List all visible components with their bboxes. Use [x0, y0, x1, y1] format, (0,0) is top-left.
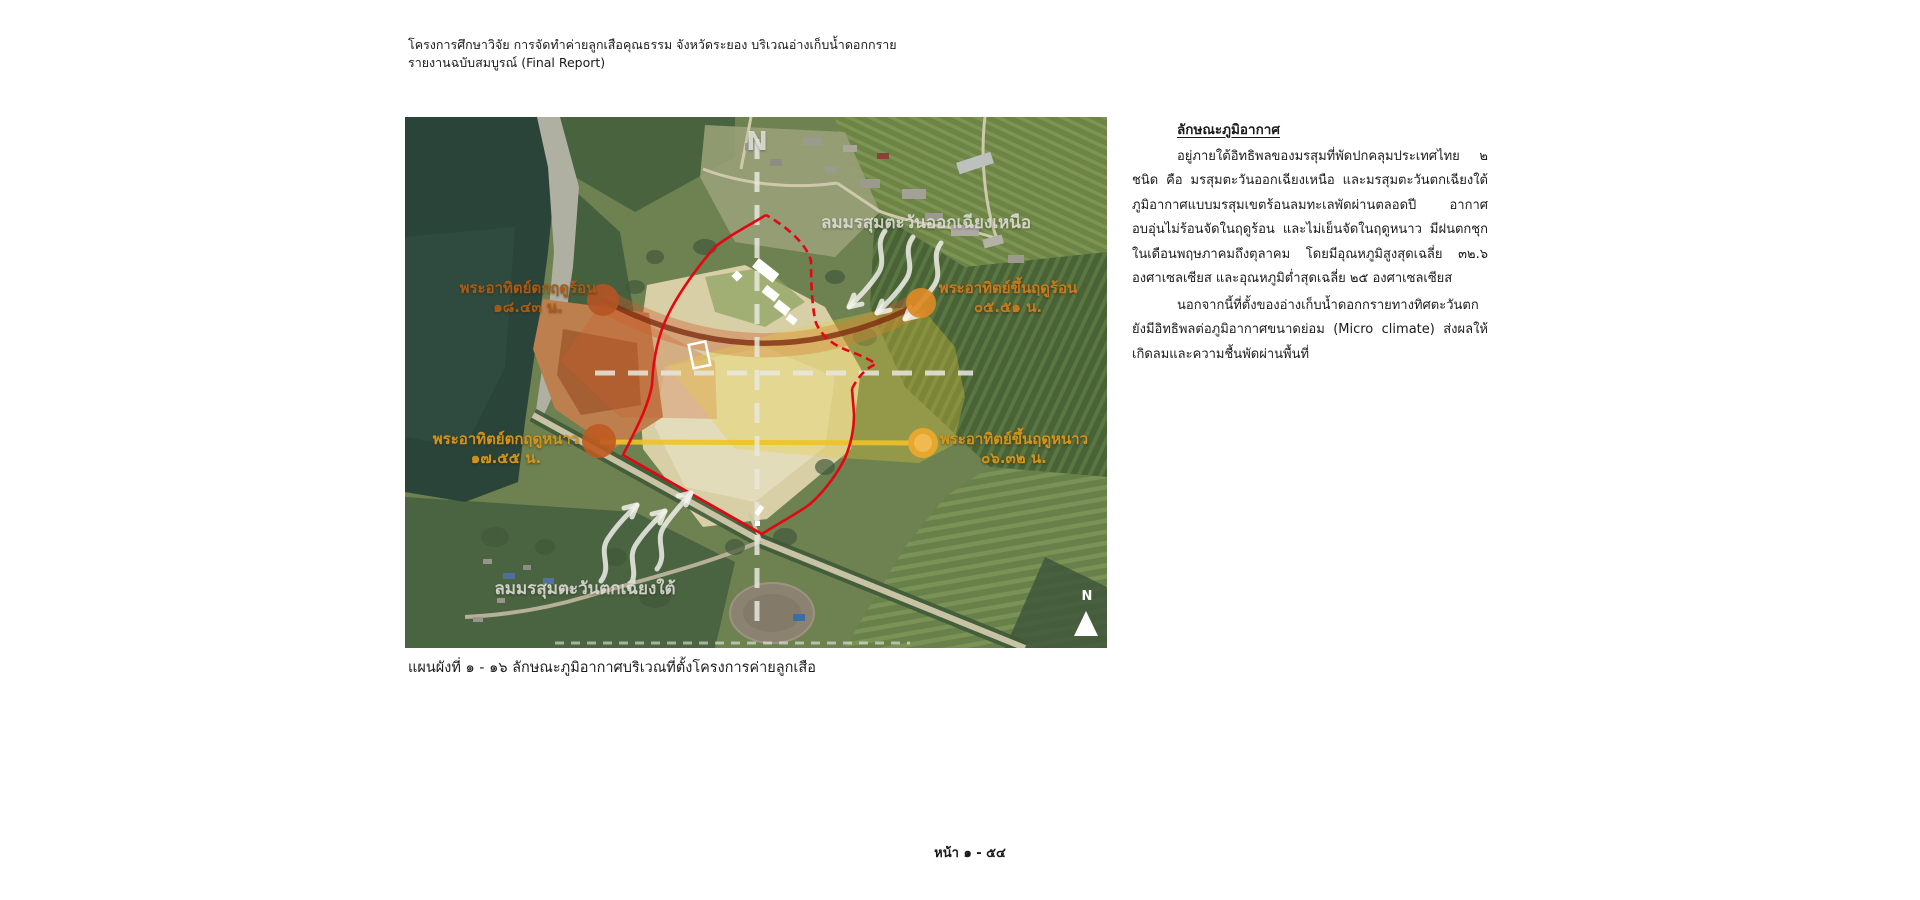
document-header: โครงการศึกษาวิจัย การจัดทำค่ายลูกเสือคุณ… — [408, 36, 1168, 72]
blue-roof-structure — [793, 614, 805, 621]
summer-sunset-marker — [587, 284, 619, 316]
pond-center — [743, 594, 801, 632]
north-axis-label: N — [735, 127, 779, 157]
winter-sunrise-marker-core — [914, 434, 932, 452]
winter-sunset-marker — [582, 424, 616, 458]
header-line-2: รายงานฉบับสมบูรณ์ (Final Report) — [408, 54, 1168, 72]
satellite-map-image — [405, 117, 1107, 648]
section-heading: ลักษณะภูมิอากาศ — [1177, 118, 1488, 143]
page-number: หน้า ๑ - ๕๔ — [880, 842, 1060, 863]
body-paragraph-1: อยู่ภายใต้อิทธิพลของมรสุมที่พัดปกคลุมประ… — [1132, 145, 1488, 292]
climate-site-map-figure: N ลมมรสุมตะวันออกเฉียงเหนือ ลมมรสุมตะวัน… — [405, 117, 1107, 648]
report-page: โครงการศึกษาวิจัย การจัดทำค่ายลูกเสือคุณ… — [0, 0, 1920, 900]
summer-sunrise-marker — [906, 288, 936, 318]
body-text-column: ลักษณะภูมิอากาศ อยู่ภายใต้อิทธิพลของมรสุ… — [1132, 118, 1488, 367]
body-paragraph-2: นอกจากนี้ที่ตั้งของอ่างเก็บน้ำดอกกรายทาง… — [1132, 294, 1488, 368]
header-line-1: โครงการศึกษาวิจัย การจัดทำค่ายลูกเสือคุณ… — [408, 36, 1168, 54]
compass-label: N — [1065, 589, 1107, 604]
winter-sun-path-line — [600, 442, 923, 443]
figure-caption: แผนผังที่ ๑ - ๑๖ ลักษณะภูมิอากาศบริเวณที… — [408, 656, 1108, 679]
